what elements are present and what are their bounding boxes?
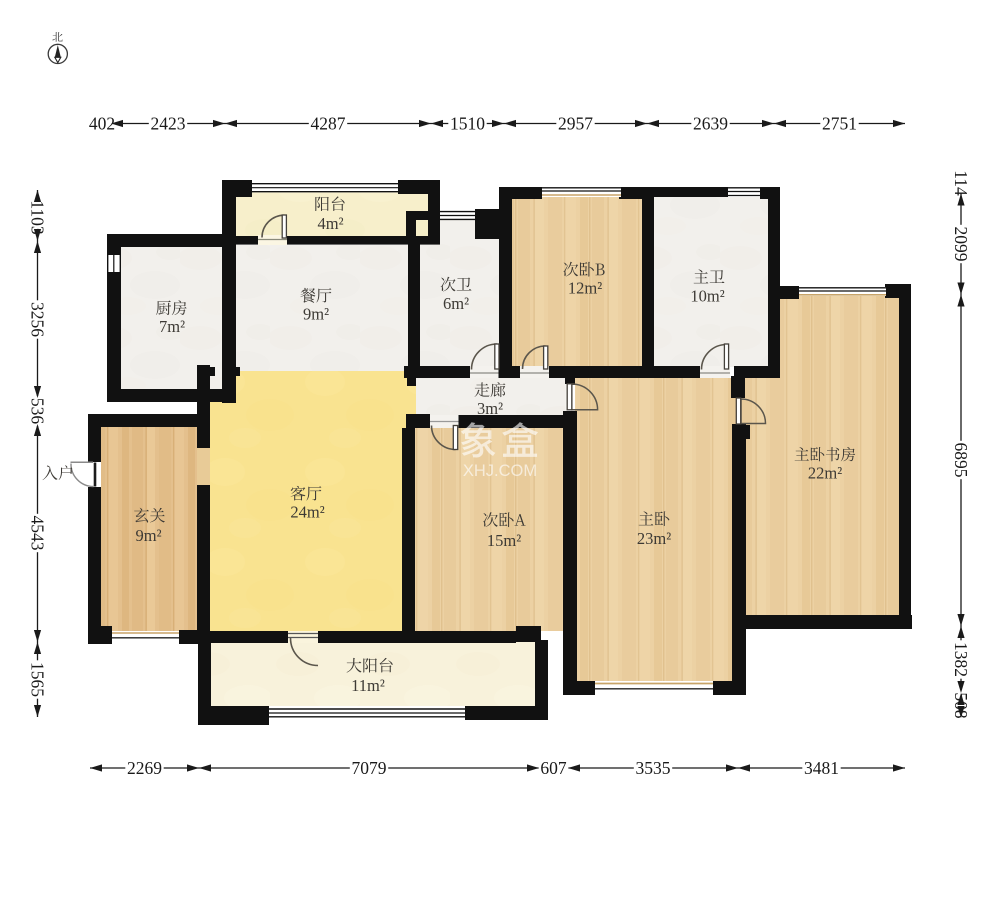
svg-text:2957: 2957 [558, 114, 593, 134]
svg-text:10m²: 10m² [690, 287, 724, 306]
svg-text:3481: 3481 [804, 758, 839, 778]
svg-text:9m²: 9m² [303, 305, 329, 324]
svg-text:7m²: 7m² [159, 317, 185, 336]
svg-text:2269: 2269 [127, 758, 162, 778]
svg-text:22m²: 22m² [808, 464, 842, 483]
svg-text:1382: 1382 [951, 642, 971, 677]
svg-text:4543: 4543 [28, 516, 48, 551]
svg-text:6m²: 6m² [443, 294, 469, 313]
svg-text:XHJ.COM: XHJ.COM [463, 462, 537, 480]
svg-text:11m²: 11m² [351, 676, 385, 695]
svg-text:3256: 3256 [28, 302, 48, 337]
svg-text:23m²: 23m² [637, 529, 671, 548]
svg-text:7079: 7079 [352, 758, 387, 778]
svg-text:1510: 1510 [450, 114, 485, 134]
svg-text:2751: 2751 [822, 114, 857, 134]
svg-text:12m²: 12m² [568, 279, 602, 298]
svg-text:6895: 6895 [951, 443, 971, 478]
svg-text:4m²: 4m² [317, 214, 343, 233]
svg-text:114: 114 [951, 170, 971, 196]
svg-text:3535: 3535 [636, 758, 671, 778]
svg-text:9m²: 9m² [135, 526, 161, 545]
svg-text:3m²: 3m² [477, 399, 503, 418]
svg-text:2423: 2423 [151, 114, 186, 134]
svg-text:2639: 2639 [693, 114, 728, 134]
svg-text:2099: 2099 [951, 227, 971, 262]
svg-text:1565: 1565 [28, 662, 48, 697]
svg-text:536: 536 [28, 398, 48, 425]
svg-text:24m²: 24m² [290, 503, 324, 522]
svg-text:607: 607 [540, 758, 567, 778]
svg-text:15m²: 15m² [487, 531, 521, 550]
svg-text:4287: 4287 [311, 114, 346, 134]
